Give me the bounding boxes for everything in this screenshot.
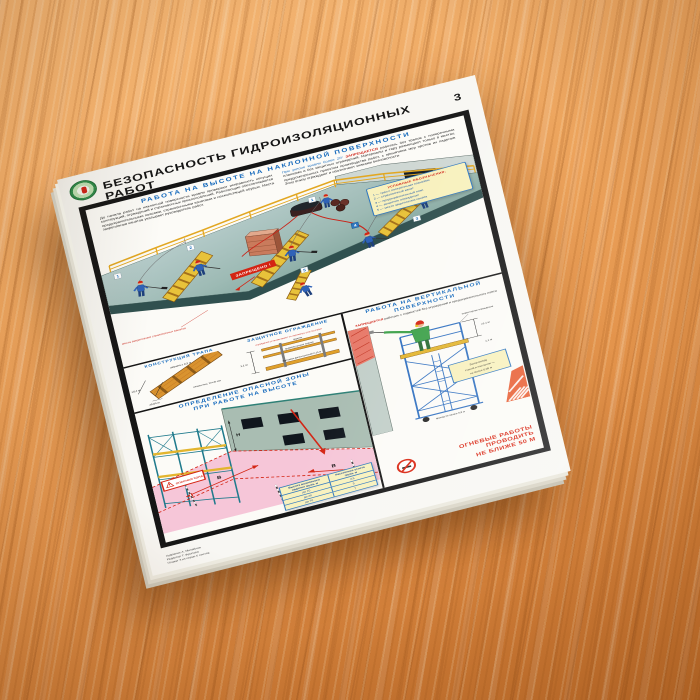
trap-plank-label: планки мин. 20×40 мм [193,379,221,388]
pass-label: проход не менее 0,6 м [436,410,466,420]
railing-dimension [247,351,260,374]
poster-page-number: 3 [453,91,463,103]
trap-gap-label: ≥0,04 м [149,401,160,407]
fire-works-warning: ОГНЕВЫЕ РАБОТЫ ПРОВОДИТЬ НЕ БЛИЖЕ 50 М [431,425,537,470]
tower-platform [400,338,469,359]
hatched-barrier-band [499,365,530,402]
safety-poster-board: БЕЗОПАСНОСТЬ ГИДРОИЗОЛЯЦИОННЫХ РАБОТ 3 Р… [57,75,571,576]
gap-note-box: Зазор между стеной и настилом — не более… [449,349,512,383]
wooden-table-scene: БЕЗОПАСНОСТЬ ГИДРОИЗОЛЯЦИОННЫХ РАБОТ 3 Р… [0,0,700,700]
poster-credits: Художник А. Михайлов Редактор Т. Фролова… [166,544,210,565]
second-height-label: 1,1 м [485,337,493,342]
no-smoking-sign-icon [396,457,418,475]
anchor-caption: места закрепления страховочных канатов [121,326,186,345]
rail-height-label: ≥1,1 м [481,320,491,325]
rail-label: инвентарное ограждение [462,305,495,315]
railing-height-label: 1,1 м [240,363,248,368]
rail-height-dimension [462,318,482,339]
safety-organization-emblem-icon [67,177,98,203]
